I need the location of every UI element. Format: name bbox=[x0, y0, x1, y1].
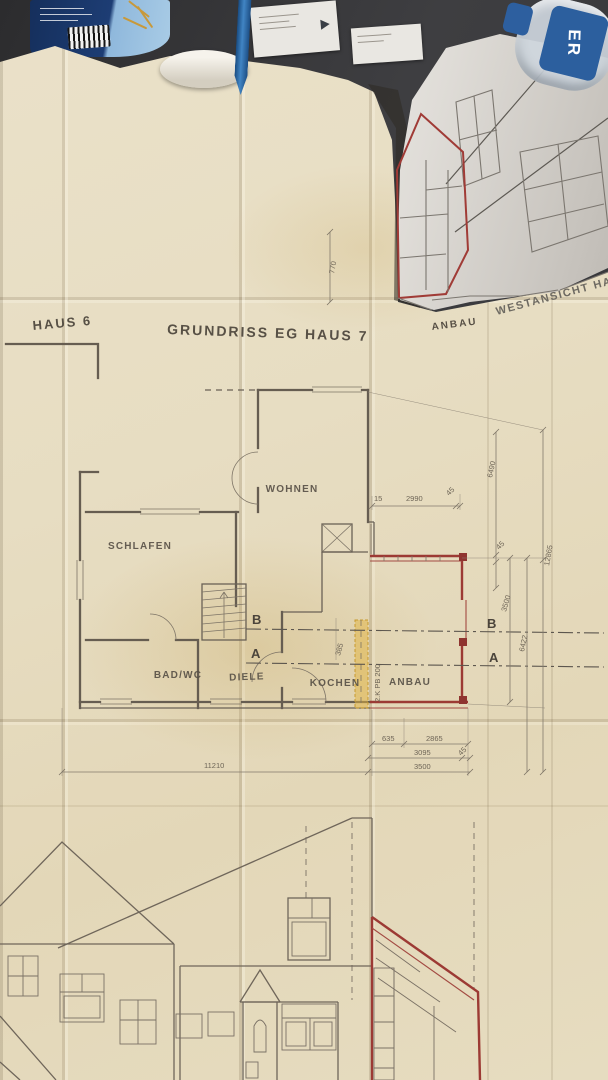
dim-15: 15 bbox=[374, 494, 382, 503]
dim-45-bottom: 45 bbox=[456, 745, 468, 757]
dim-12865: 12865 bbox=[542, 544, 554, 566]
haus6-walls bbox=[6, 344, 98, 472]
dim-3095: 3095 bbox=[414, 748, 431, 757]
dim-3500-bottom: 3500 bbox=[414, 762, 431, 771]
dim-2990: 2990 bbox=[406, 494, 423, 503]
room-kochen: KOCHEN bbox=[310, 678, 361, 689]
section-marker-a-left: A bbox=[251, 646, 261, 661]
section-marker-b-left: B bbox=[252, 612, 261, 627]
dim-6422: 6422 bbox=[517, 634, 529, 652]
page-title: GRUNDRISS EG HAUS 7 bbox=[167, 321, 369, 344]
plan-linework-svg: HAUS 6 GRUNDRISS EG HAUS 7 ANBAU WESTANS… bbox=[0, 0, 608, 1080]
dim-11210: 11210 bbox=[204, 761, 224, 770]
section-lines: B A B A bbox=[246, 612, 604, 667]
dim-6490: 6490 bbox=[485, 460, 497, 478]
dim-770: 770 bbox=[327, 260, 338, 274]
room-diele: DIELE bbox=[229, 671, 265, 683]
dim-45-top: 45 bbox=[444, 485, 456, 497]
room-schlafen: SCHLAFEN bbox=[108, 541, 172, 552]
room-labels: WOHNEN SCHLAFEN BAD/WC DIELE KOCHEN ANBA… bbox=[108, 484, 431, 689]
label-westansicht: WESTANSICHT HA bbox=[495, 275, 608, 318]
dim-2865: 2865 bbox=[426, 734, 443, 743]
dim-635: 635 bbox=[382, 734, 395, 743]
dim-3500-right: 3500 bbox=[499, 594, 512, 613]
photo-scene: HAUS 6 GRUNDRISS EG HAUS 7 ANBAU WESTANS… bbox=[0, 0, 608, 1080]
dim-385: 385 bbox=[333, 642, 345, 656]
beam-note: 2.K PB 200 bbox=[373, 664, 382, 702]
label-haus6: HAUS 6 bbox=[32, 313, 93, 333]
bottle-label-text: ER bbox=[563, 29, 584, 57]
room-wohnen: WOHNEN bbox=[266, 484, 319, 495]
section-marker-b-right: B bbox=[487, 616, 496, 631]
room-anbau: ANBAU bbox=[389, 677, 431, 688]
dimension-lines: 770 15 2990 45 6490 12865 45 3500 6422 3… bbox=[59, 229, 555, 776]
elevation-drawings bbox=[0, 818, 480, 1080]
room-bad-wc: BAD/WC bbox=[154, 670, 202, 681]
section-marker-a-right: A bbox=[489, 650, 499, 665]
label-anbau-top: ANBAU bbox=[431, 316, 478, 333]
